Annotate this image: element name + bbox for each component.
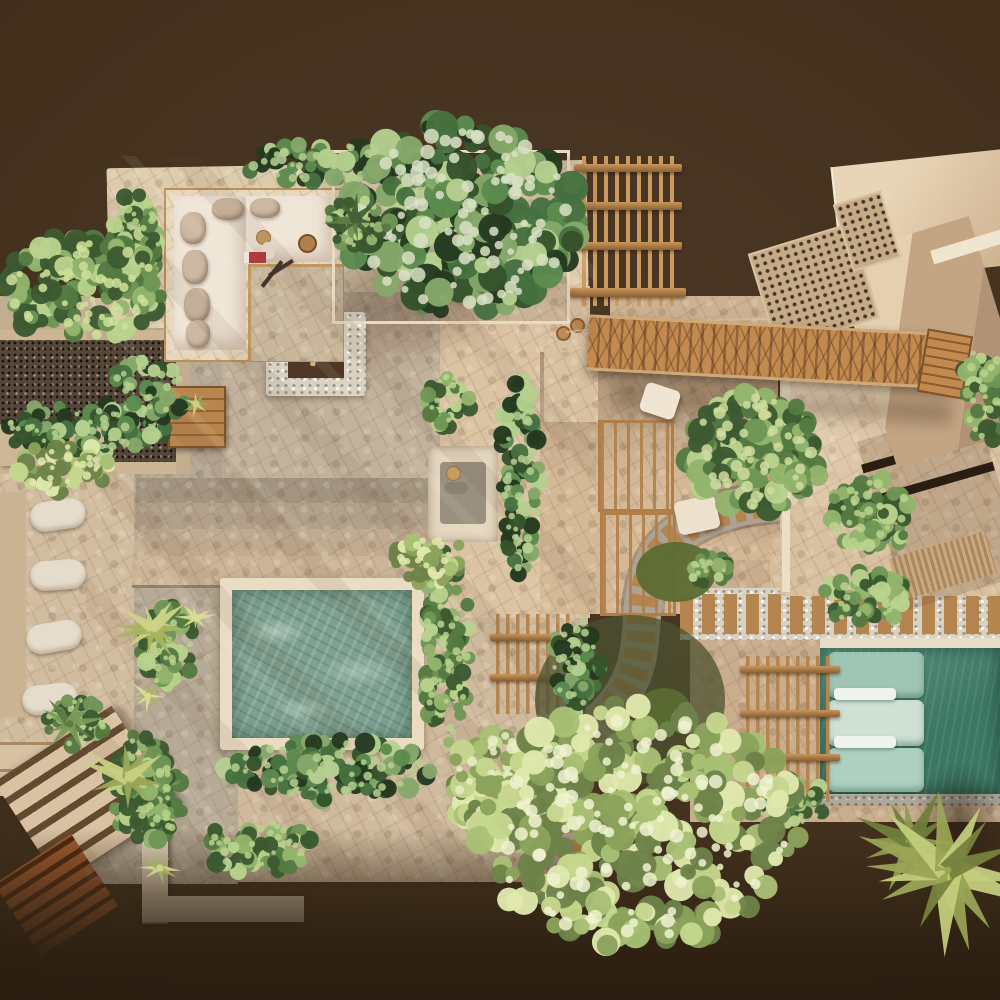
corner-shade-bottom-right — [912, 762, 1000, 882]
pool2-pillow-1 — [834, 688, 896, 700]
trellis-frame-2 — [600, 512, 676, 616]
pergola-right-beam-3 — [740, 754, 840, 761]
pool2-pillow-2 — [834, 736, 896, 748]
walkway-planks — [680, 594, 1000, 634]
lounger-pad-2 — [29, 558, 87, 592]
sunlight-overlay — [86, 156, 596, 880]
pergola-right-slats — [746, 656, 832, 802]
bench-strip — [0, 492, 26, 717]
pool2-coping — [820, 638, 1000, 648]
bottom-fade — [0, 828, 1000, 1000]
pergola-right-beam-2 — [740, 710, 840, 717]
pergola-right-beam-1 — [740, 666, 840, 673]
pool2-daybed-3 — [828, 748, 924, 792]
trellis-frame-1 — [598, 420, 674, 512]
aerial-villa-render — [0, 0, 1000, 1000]
